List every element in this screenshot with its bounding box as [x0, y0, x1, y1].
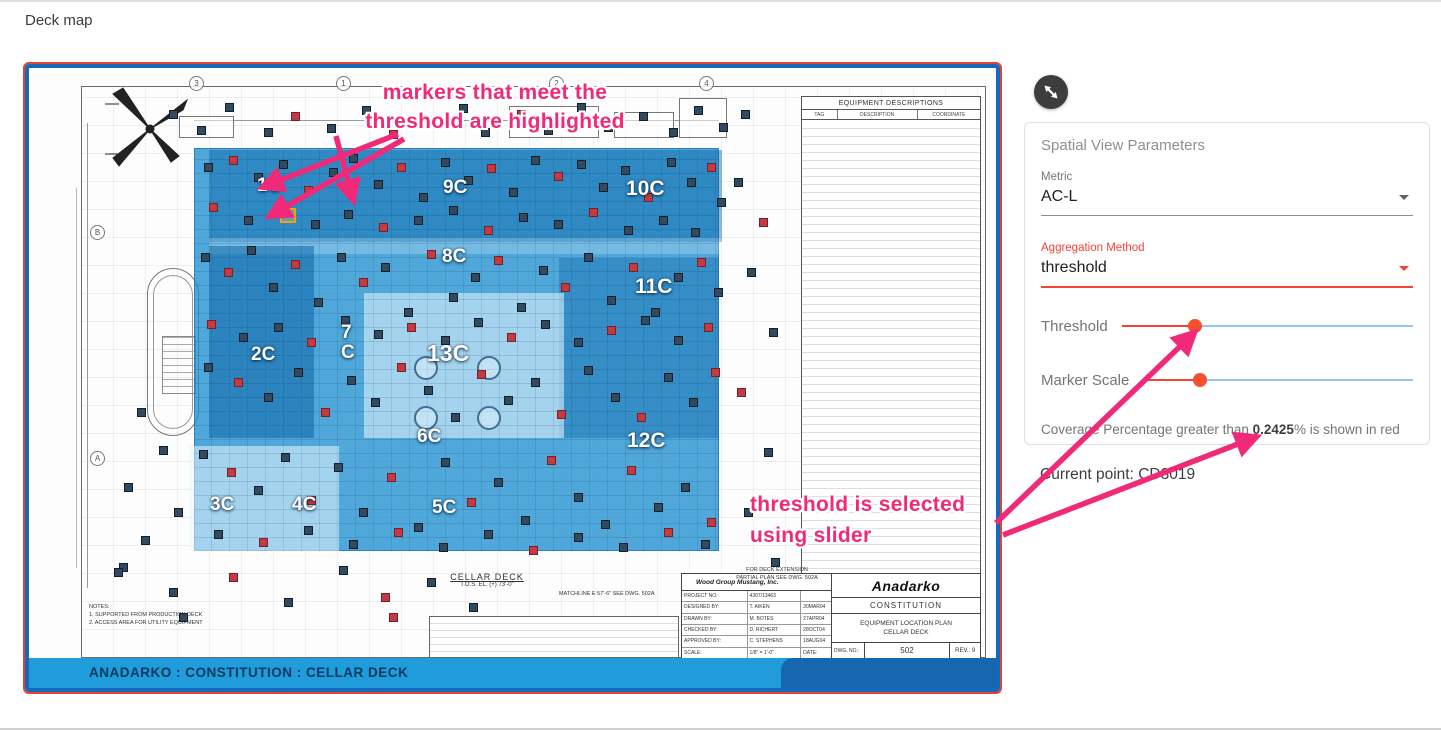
deck-label-7c: 7 C — [341, 323, 355, 363]
deck-label-8c: 8C — [442, 247, 466, 267]
map-marker[interactable] — [374, 180, 383, 189]
map-marker[interactable] — [531, 378, 540, 387]
deck-label-9c: 9C — [443, 178, 467, 198]
deck-label-1c: 1C — [257, 176, 281, 196]
map-marker[interactable] — [674, 273, 683, 282]
map-marker[interactable] — [199, 450, 208, 459]
map-marker[interactable] — [169, 588, 178, 597]
metric-value[interactable]: AC-L — [1041, 187, 1413, 207]
map-marker-highlighted[interactable] — [387, 473, 396, 482]
map-marker[interactable] — [347, 376, 356, 385]
equipment-col-coordinate: COORDINATE — [918, 110, 980, 119]
extension-note: FOR DECK EXTENSION PARTIAL PLAN SEE DWG.… — [717, 566, 837, 582]
map-marker[interactable] — [734, 178, 743, 187]
map-marker[interactable] — [691, 228, 700, 237]
current-point-text: Current point: CD3019 — [1040, 466, 1195, 484]
map-marker[interactable] — [601, 520, 610, 529]
deck-label-12c: 12C — [627, 431, 666, 451]
map-marker[interactable] — [197, 126, 206, 135]
map-marker[interactable] — [124, 483, 133, 492]
map-marker[interactable] — [471, 273, 480, 282]
map-marker-highlighted[interactable] — [704, 323, 713, 332]
map-marker-highlighted[interactable] — [291, 260, 300, 269]
map-marker-highlighted[interactable] — [381, 593, 390, 602]
map-marker-highlighted[interactable] — [487, 164, 496, 173]
map-marker[interactable] — [424, 386, 433, 395]
map-marker[interactable] — [247, 246, 256, 255]
map-marker[interactable] — [611, 393, 620, 402]
map-marker[interactable] — [281, 453, 290, 462]
map-marker-highlighted[interactable] — [307, 338, 316, 347]
map-marker-highlighted[interactable] — [359, 278, 368, 287]
map-marker[interactable] — [381, 263, 390, 272]
map-marker[interactable] — [159, 446, 168, 455]
map-marker-highlighted[interactable] — [407, 323, 416, 332]
map-marker[interactable] — [174, 508, 183, 517]
map-marker[interactable] — [521, 516, 530, 525]
map-marker-highlighted[interactable] — [234, 378, 243, 387]
map-marker-highlighted[interactable] — [397, 363, 406, 372]
dimension-line — [87, 123, 88, 588]
map-marker-highlighted[interactable] — [477, 370, 486, 379]
map-marker-highlighted[interactable] — [379, 223, 388, 232]
map-marker[interactable] — [574, 338, 583, 347]
map-marker[interactable] — [541, 320, 550, 329]
map-marker[interactable] — [279, 160, 288, 169]
map-marker[interactable] — [584, 366, 593, 375]
title-block: Wood Group Mustang, Inc. PROJECT NO.:430… — [681, 573, 981, 659]
map-marker[interactable] — [577, 160, 586, 169]
map-marker[interactable] — [764, 448, 773, 457]
map-marker[interactable] — [574, 493, 583, 502]
deck-label-2c: 2C — [251, 345, 275, 365]
map-marker[interactable] — [451, 413, 460, 422]
deck-label-6c: 6C — [417, 427, 441, 447]
title-block-row: CHECKED BY:D. RICHERT28OCT04 — [682, 625, 831, 636]
map-marker[interactable] — [619, 543, 628, 552]
map-marker[interactable] — [169, 110, 178, 119]
map-marker-highlighted[interactable] — [397, 163, 406, 172]
resize-diagonal-icon — [1042, 83, 1060, 101]
map-marker[interactable] — [204, 363, 213, 372]
deck-label-11c: 11C — [635, 277, 672, 297]
equipment-col-tag: TAG — [802, 110, 838, 119]
map-marker[interactable] — [621, 166, 630, 175]
aggregation-method-select[interactable]: threshold — [1041, 258, 1413, 288]
map-marker[interactable] — [449, 206, 458, 215]
map-marker[interactable] — [359, 508, 368, 517]
map-marker-highlighted[interactable] — [547, 456, 556, 465]
coverage-threshold-value: 0.2425 — [1253, 422, 1294, 437]
stair-hatch — [162, 336, 196, 394]
deck-map-canvas[interactable]: 3124BA 1C9C10C8C11C7 C2C13C6C12C3C4C5C E… — [25, 64, 1000, 692]
map-marker[interactable] — [519, 213, 528, 222]
map-marker[interactable] — [494, 478, 503, 487]
grid-bubble-4: 4 — [699, 76, 714, 91]
map-marker-highlighted[interactable] — [554, 172, 563, 181]
map-marker[interactable] — [274, 323, 283, 332]
map-marker-highlighted[interactable] — [389, 613, 398, 622]
map-marker-highlighted[interactable] — [394, 528, 403, 537]
deck-label-5c: 5C — [432, 498, 456, 518]
drawing-notes: NOTES: 1. SUPPORTED FROM PRODUCTION DECK… — [89, 603, 203, 627]
map-marker[interactable] — [654, 503, 663, 512]
map-marker[interactable] — [114, 568, 123, 577]
map-marker[interactable] — [284, 598, 293, 607]
grid-bubble-3: 3 — [189, 76, 204, 91]
map-marker[interactable] — [349, 154, 358, 163]
dwg-no-label: DWG. NO.: — [832, 643, 865, 658]
rev-no: REV.: 9 — [950, 643, 980, 658]
threshold-label: Threshold — [1041, 318, 1108, 335]
map-marker[interactable] — [311, 220, 320, 229]
map-marker[interactable] — [204, 163, 213, 172]
metric-select[interactable]: AC-L — [1041, 187, 1413, 216]
map-marker[interactable] — [714, 288, 723, 297]
map-marker-highlighted[interactable] — [494, 256, 503, 265]
spatial-view-parameters-card: Spatial View Parameters Metric AC-L Aggr… — [1024, 122, 1430, 445]
marker-scale-slider-row: Marker Scale — [1041, 372, 1413, 388]
deck-bar: ANADARKO : CONSTITUTION : CELLAR DECK — [29, 658, 996, 688]
map-marker[interactable] — [349, 540, 358, 549]
matchline-note: MATCHLINE E 57'-6" SEE DWG. 502A — [559, 590, 655, 598]
grid-bubble-a: A — [90, 451, 105, 466]
map-marker-highlighted[interactable] — [484, 226, 493, 235]
map-marker-highlighted[interactable] — [507, 333, 516, 342]
map-marker-highlighted[interactable] — [707, 163, 716, 172]
map-marker[interactable] — [641, 316, 650, 325]
map-marker[interactable] — [667, 158, 676, 167]
map-marker[interactable] — [664, 373, 673, 382]
deck-label-13c: 13C — [427, 343, 469, 363]
structure-box — [179, 116, 234, 138]
dimension-line — [76, 188, 77, 568]
map-marker[interactable] — [419, 193, 428, 202]
map-marker-highlighted[interactable] — [207, 320, 216, 329]
revision-table — [429, 616, 679, 658]
map-marker-highlighted[interactable] — [427, 250, 436, 259]
map-marker[interactable] — [201, 253, 210, 262]
marker-scale-slider[interactable] — [1143, 379, 1413, 381]
map-marker-highlighted[interactable] — [229, 156, 238, 165]
map-marker[interactable] — [554, 220, 563, 229]
metric-label: Metric — [1041, 171, 1413, 184]
map-marker[interactable] — [339, 566, 348, 575]
deck-label-4c: 4C — [292, 495, 316, 515]
expand-button[interactable] — [1034, 75, 1068, 109]
map-marker[interactable] — [337, 253, 346, 262]
map-marker[interactable] — [694, 106, 703, 115]
map-marker[interactable] — [304, 526, 313, 535]
equipment-table-title: EQUIPMENT DESCRIPTIONS — [802, 97, 980, 110]
annotation-markers-note: markers that meet the threshold are high… — [340, 78, 650, 136]
chevron-down-icon — [1399, 266, 1409, 271]
deck-map-page: Deck map — [0, 0, 1441, 730]
map-marker[interactable] — [449, 293, 458, 302]
deck-label-10c: 10C — [626, 179, 665, 199]
map-marker[interactable] — [741, 110, 750, 119]
map-marker[interactable] — [414, 216, 423, 225]
aggregation-method-value[interactable]: threshold — [1041, 258, 1413, 278]
panel-title: Spatial View Parameters — [1041, 137, 1413, 155]
map-marker-highlighted[interactable] — [759, 218, 768, 227]
map-marker[interactable] — [509, 188, 518, 197]
equipment-col-description: DESCRIPTION — [838, 110, 918, 119]
map-marker[interactable] — [141, 536, 150, 545]
deck-bar-accent — [781, 658, 996, 688]
map-marker[interactable] — [439, 543, 448, 552]
aggregation-underline — [1041, 286, 1413, 288]
map-marker-highlighted[interactable] — [737, 388, 746, 397]
map-marker[interactable] — [574, 533, 583, 542]
map-marker[interactable] — [659, 216, 668, 225]
title-block-row: DRAWN BY:M. BOTES27APR04 — [682, 614, 831, 625]
map-marker-highlighted[interactable] — [304, 186, 313, 195]
map-marker[interactable] — [689, 398, 698, 407]
threshold-slider[interactable] — [1122, 325, 1413, 327]
map-marker[interactable] — [681, 483, 690, 492]
map-marker-highlighted[interactable] — [209, 203, 218, 212]
map-marker[interactable] — [669, 128, 678, 137]
map-marker[interactable] — [374, 330, 383, 339]
map-marker-highlighted[interactable] — [697, 258, 706, 267]
map-marker-highlighted[interactable] — [629, 263, 638, 272]
map-marker[interactable] — [225, 103, 234, 112]
equipment-circle — [477, 406, 501, 430]
map-marker[interactable] — [441, 458, 450, 467]
map-marker[interactable] — [441, 158, 450, 167]
chevron-down-icon — [1399, 195, 1409, 200]
title-block-row: SCALE:1/8" = 1'-0"DATE: — [682, 648, 831, 658]
map-marker-highlighted[interactable] — [227, 468, 236, 477]
map-marker[interactable] — [414, 523, 423, 532]
structure-box — [679, 98, 727, 138]
map-marker[interactable] — [504, 396, 513, 405]
map-marker[interactable] — [214, 530, 223, 539]
map-marker[interactable] — [769, 328, 778, 337]
map-marker[interactable] — [747, 268, 756, 277]
map-marker[interactable] — [651, 308, 660, 317]
map-marker[interactable] — [244, 216, 253, 225]
dwg-no: 502 — [865, 643, 951, 658]
map-marker-highlighted[interactable] — [529, 546, 538, 555]
blueprint-sheet: 3124BA 1C9C10C8C11C7 C2C13C6C12C3C4C5C E… — [29, 68, 996, 658]
map-marker-highlighted[interactable] — [589, 208, 598, 217]
map-marker-highlighted[interactable] — [229, 573, 238, 582]
plan-title-2: CELLAR DECK — [883, 628, 928, 637]
map-marker[interactable] — [137, 408, 146, 417]
map-marker[interactable] — [584, 253, 593, 262]
selected-marker-highlight[interactable] — [280, 208, 296, 223]
page-title: Deck map — [25, 12, 93, 29]
map-marker[interactable] — [474, 318, 483, 327]
map-marker[interactable] — [719, 123, 728, 132]
deck-label-3c: 3C — [210, 495, 234, 515]
map-marker-highlighted[interactable] — [607, 326, 616, 335]
map-marker[interactable] — [254, 486, 263, 495]
grid-bubble-b: B — [90, 225, 105, 240]
map-marker[interactable] — [469, 603, 478, 612]
map-marker[interactable] — [687, 178, 696, 187]
map-marker-highlighted[interactable] — [467, 498, 476, 507]
map-marker[interactable] — [269, 283, 278, 292]
map-marker-highlighted[interactable] — [224, 268, 233, 277]
map-marker[interactable] — [327, 124, 336, 133]
map-marker-highlighted[interactable] — [291, 112, 300, 121]
project-name: CONSTITUTION — [832, 598, 980, 614]
map-marker[interactable] — [674, 336, 683, 345]
title-block-row: PROJECT NO.:4307/13463 — [682, 591, 831, 602]
map-marker[interactable] — [531, 156, 540, 165]
aggregation-method-label: Aggregation Method — [1041, 242, 1413, 255]
map-marker[interactable] — [404, 308, 413, 317]
plan-title-1: EQUIPMENT LOCATION PLAN — [860, 619, 952, 628]
threshold-slider-thumb[interactable] — [1188, 319, 1202, 333]
map-marker[interactable] — [701, 540, 710, 549]
title-block-row: APPROVED BY:C. STEPHENS18AUG04 — [682, 636, 831, 647]
map-marker[interactable] — [599, 183, 608, 192]
map-marker[interactable] — [329, 168, 338, 177]
map-marker-highlighted[interactable] — [557, 410, 566, 419]
deck-bar-title: ANADARKO : CONSTITUTION : CELLAR DECK — [89, 665, 408, 680]
map-marker-highlighted[interactable] — [561, 283, 570, 292]
map-marker[interactable] — [264, 128, 273, 137]
coverage-note: Coverage Percentage greater than 0.2425%… — [1041, 422, 1413, 437]
map-marker[interactable] — [314, 298, 323, 307]
map-marker[interactable] — [294, 368, 303, 377]
map-marker[interactable] — [334, 463, 343, 472]
map-marker-highlighted[interactable] — [707, 518, 716, 527]
metric-underline — [1041, 215, 1413, 216]
map-marker[interactable] — [607, 296, 616, 305]
threshold-slider-fill — [1122, 325, 1195, 327]
map-marker-highlighted[interactable] — [321, 408, 330, 417]
threshold-slider-row: Threshold — [1041, 318, 1413, 334]
title-block-row: DESIGNED BY:T. AIKEN30MAR04 — [682, 602, 831, 613]
map-marker-highlighted[interactable] — [627, 466, 636, 475]
map-marker[interactable] — [484, 530, 493, 539]
map-marker[interactable] — [344, 210, 353, 219]
marker-scale-slider-thumb[interactable] — [1193, 373, 1207, 387]
map-marker[interactable] — [539, 266, 548, 275]
map-marker[interactable] — [264, 393, 273, 402]
anadarko-logo: Anadarko — [832, 574, 980, 598]
marker-scale-slider-fill — [1143, 379, 1200, 381]
map-marker[interactable] — [624, 226, 633, 235]
map-marker[interactable] — [717, 198, 726, 207]
annotation-threshold-note: threshold is selected using slider — [750, 489, 1020, 551]
marker-scale-label: Marker Scale — [1041, 372, 1129, 389]
map-marker-highlighted[interactable] — [664, 528, 673, 537]
map-marker[interactable] — [371, 398, 380, 407]
cellar-deck-label: CELLAR DECK T.O.S. EL. (+) 73'-0" — [427, 572, 547, 588]
map-marker-highlighted[interactable] — [711, 368, 720, 377]
map-marker-highlighted[interactable] — [637, 413, 646, 422]
map-marker-highlighted[interactable] — [259, 538, 268, 547]
map-marker[interactable] — [517, 303, 526, 312]
map-marker[interactable] — [239, 333, 248, 342]
